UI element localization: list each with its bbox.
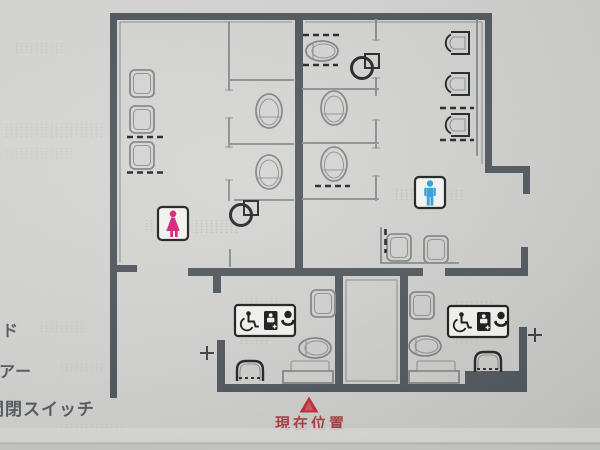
stall-divider: [303, 89, 378, 199]
male-icon: [415, 177, 445, 208]
wall-segment: [295, 13, 303, 276]
wall-segment: [521, 247, 528, 270]
toilet-icon: [299, 338, 331, 358]
door-switch-cross-icon: [200, 346, 214, 360]
wall-segment: [117, 265, 137, 272]
accessible-toilet-icon: [237, 361, 263, 381]
washbasin-icon: [311, 290, 335, 317]
wall-segment: [400, 276, 408, 388]
washbasin-icon: [410, 292, 434, 319]
legend-label: アー: [0, 364, 32, 381]
washbasin-icon: [130, 142, 154, 169]
urinal-icon: [446, 114, 469, 136]
washbasin-icon: [130, 106, 154, 133]
washbasin-icon: [387, 234, 411, 261]
wall-segment: [485, 13, 492, 173]
wall-segment: [213, 276, 221, 293]
multifunction-room-sign: [235, 305, 295, 336]
urinal-icon: [446, 73, 469, 95]
wall-segment: [523, 166, 530, 194]
multifunction-room-sign: [448, 306, 508, 337]
toilet-icon: [321, 91, 347, 125]
accessible-toilet-icon: [475, 352, 501, 372]
door-switch-cross-icon: [528, 328, 542, 342]
sign-photo: 現在位置 ド アー 開閉スイッチ: [0, 0, 600, 450]
legend-label: ド: [2, 323, 19, 340]
toilet-icon: [409, 336, 441, 356]
floor-plan: 現在位置 ド アー 開閉スイッチ: [0, 0, 600, 450]
female-icon: [158, 207, 188, 240]
counter-icon: [283, 361, 333, 383]
legend-label: 開閉スイッチ: [0, 400, 95, 419]
wall-segment: [110, 13, 117, 398]
counter-icon: [409, 361, 459, 383]
sign-bottom-edge: [0, 428, 600, 450]
pictograms: [158, 177, 508, 337]
service-mass: [465, 371, 521, 386]
washbasin-icon: [424, 236, 448, 263]
wall-segment: [188, 268, 423, 276]
washbasin-icon: [130, 70, 154, 97]
toilet-icon: [321, 147, 347, 181]
current-position-marker: 現在位置: [275, 397, 347, 433]
corner-basin-icon: [352, 54, 380, 79]
wall-segment: [335, 276, 343, 388]
toilet-icon: [306, 41, 338, 61]
toilet-icon: [256, 155, 282, 189]
toilet-icon: [256, 94, 282, 128]
urinal-icon: [446, 32, 469, 54]
wall-segment: [445, 268, 528, 276]
braille-dots: [2, 42, 492, 441]
wall-segment: [217, 340, 225, 388]
